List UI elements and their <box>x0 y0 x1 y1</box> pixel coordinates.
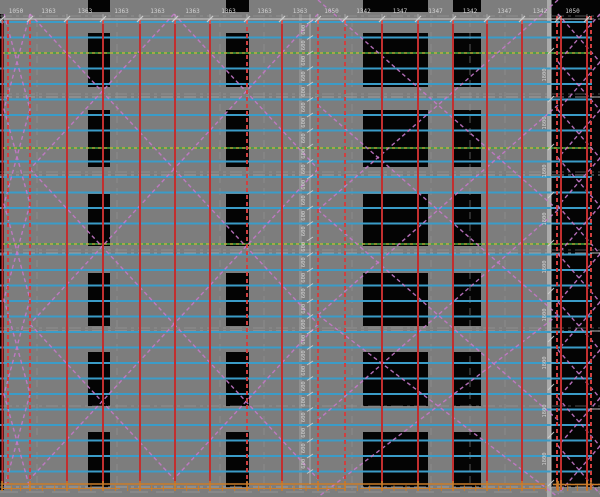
dimension-label-600: 600 <box>301 87 307 97</box>
dimension-label-1800: 1800 <box>542 68 548 81</box>
dimension-label: 1363 <box>41 8 56 15</box>
dimension-label-1800: 1800 <box>542 260 548 273</box>
dimension-label: 1363 <box>221 8 236 15</box>
dimension-label-600: 600 <box>301 242 307 252</box>
dimension-label-600: 600 <box>301 226 307 236</box>
dimension-label-600: 600 <box>301 412 307 422</box>
dimension-label: 1342 <box>463 8 478 15</box>
dimension-label-1800: 1800 <box>542 164 548 177</box>
dimension-label: 1363 <box>293 8 308 15</box>
dimension-label-600: 600 <box>301 211 307 221</box>
dimension-label-600: 600 <box>301 273 307 283</box>
dimension-label-600: 600 <box>301 180 307 190</box>
dimension-label-600: 600 <box>301 381 307 391</box>
dimension-label-1800: 1800 <box>542 404 548 417</box>
window-opening <box>88 110 110 167</box>
dimension-label-600: 600 <box>301 118 307 128</box>
dimension-label: 1050 <box>9 8 24 15</box>
dimension-label: 1347 <box>497 8 512 15</box>
window-opening <box>88 33 110 87</box>
dimension-label-1800: 1800 <box>542 452 548 465</box>
dimension-label-600: 600 <box>301 164 307 174</box>
window-opening <box>226 110 249 167</box>
dimension-label: 1363 <box>185 8 200 15</box>
dimension-label-600: 600 <box>301 459 307 469</box>
cad-canvas[interactable]: 1050136313631363136313631363136313631050… <box>0 0 600 497</box>
cad-viewport[interactable]: 1050136313631363136313631363136313631050… <box>0 0 600 497</box>
dimension-label: 1363 <box>150 8 165 15</box>
dimension-label-600: 600 <box>301 319 307 329</box>
dimension-label: 1363 <box>257 8 272 15</box>
window-opening <box>226 33 249 87</box>
dimension-label-600: 600 <box>301 366 307 376</box>
dimension-label-600: 600 <box>301 71 307 81</box>
dimension-label-600: 600 <box>301 56 307 66</box>
window-opening <box>453 194 481 246</box>
dimension-label-600: 600 <box>301 335 307 345</box>
dimension-label-600: 600 <box>301 133 307 143</box>
dimension-label-600: 600 <box>301 288 307 298</box>
dimension-label: 1363 <box>78 8 93 15</box>
dimension-label-600: 600 <box>301 304 307 314</box>
dimension-label-600: 600 <box>301 25 307 35</box>
dimension-label-600: 600 <box>301 397 307 407</box>
window-opening <box>88 273 110 326</box>
dimension-label: 1347 <box>393 8 408 15</box>
dimension-label-1800: 1800 <box>542 212 548 225</box>
window-opening <box>88 194 110 246</box>
dimension-label: 1342 <box>533 8 548 15</box>
dimension-label-600: 600 <box>301 102 307 112</box>
dimension-label-1800: 1800 <box>542 356 548 369</box>
dimension-label-1800: 1800 <box>542 308 548 321</box>
dimension-label-1800: 1800 <box>542 116 548 129</box>
dimension-label: 1363 <box>114 8 129 15</box>
dimension-label-600: 600 <box>301 40 307 50</box>
dimension-label-600: 600 <box>301 149 307 159</box>
dimension-label: 1050 <box>324 8 339 15</box>
window-opening <box>226 273 249 326</box>
dimension-label-600: 600 <box>301 428 307 438</box>
dimension-label-600: 600 <box>301 350 307 360</box>
dimension-label: 1342 <box>356 8 371 15</box>
dimension-label: 1347 <box>428 8 443 15</box>
dimension-label-600: 600 <box>301 443 307 453</box>
dimension-label: 1050 <box>565 8 580 15</box>
dimension-label-600: 600 <box>301 195 307 205</box>
dimension-label-600: 600 <box>301 257 307 267</box>
